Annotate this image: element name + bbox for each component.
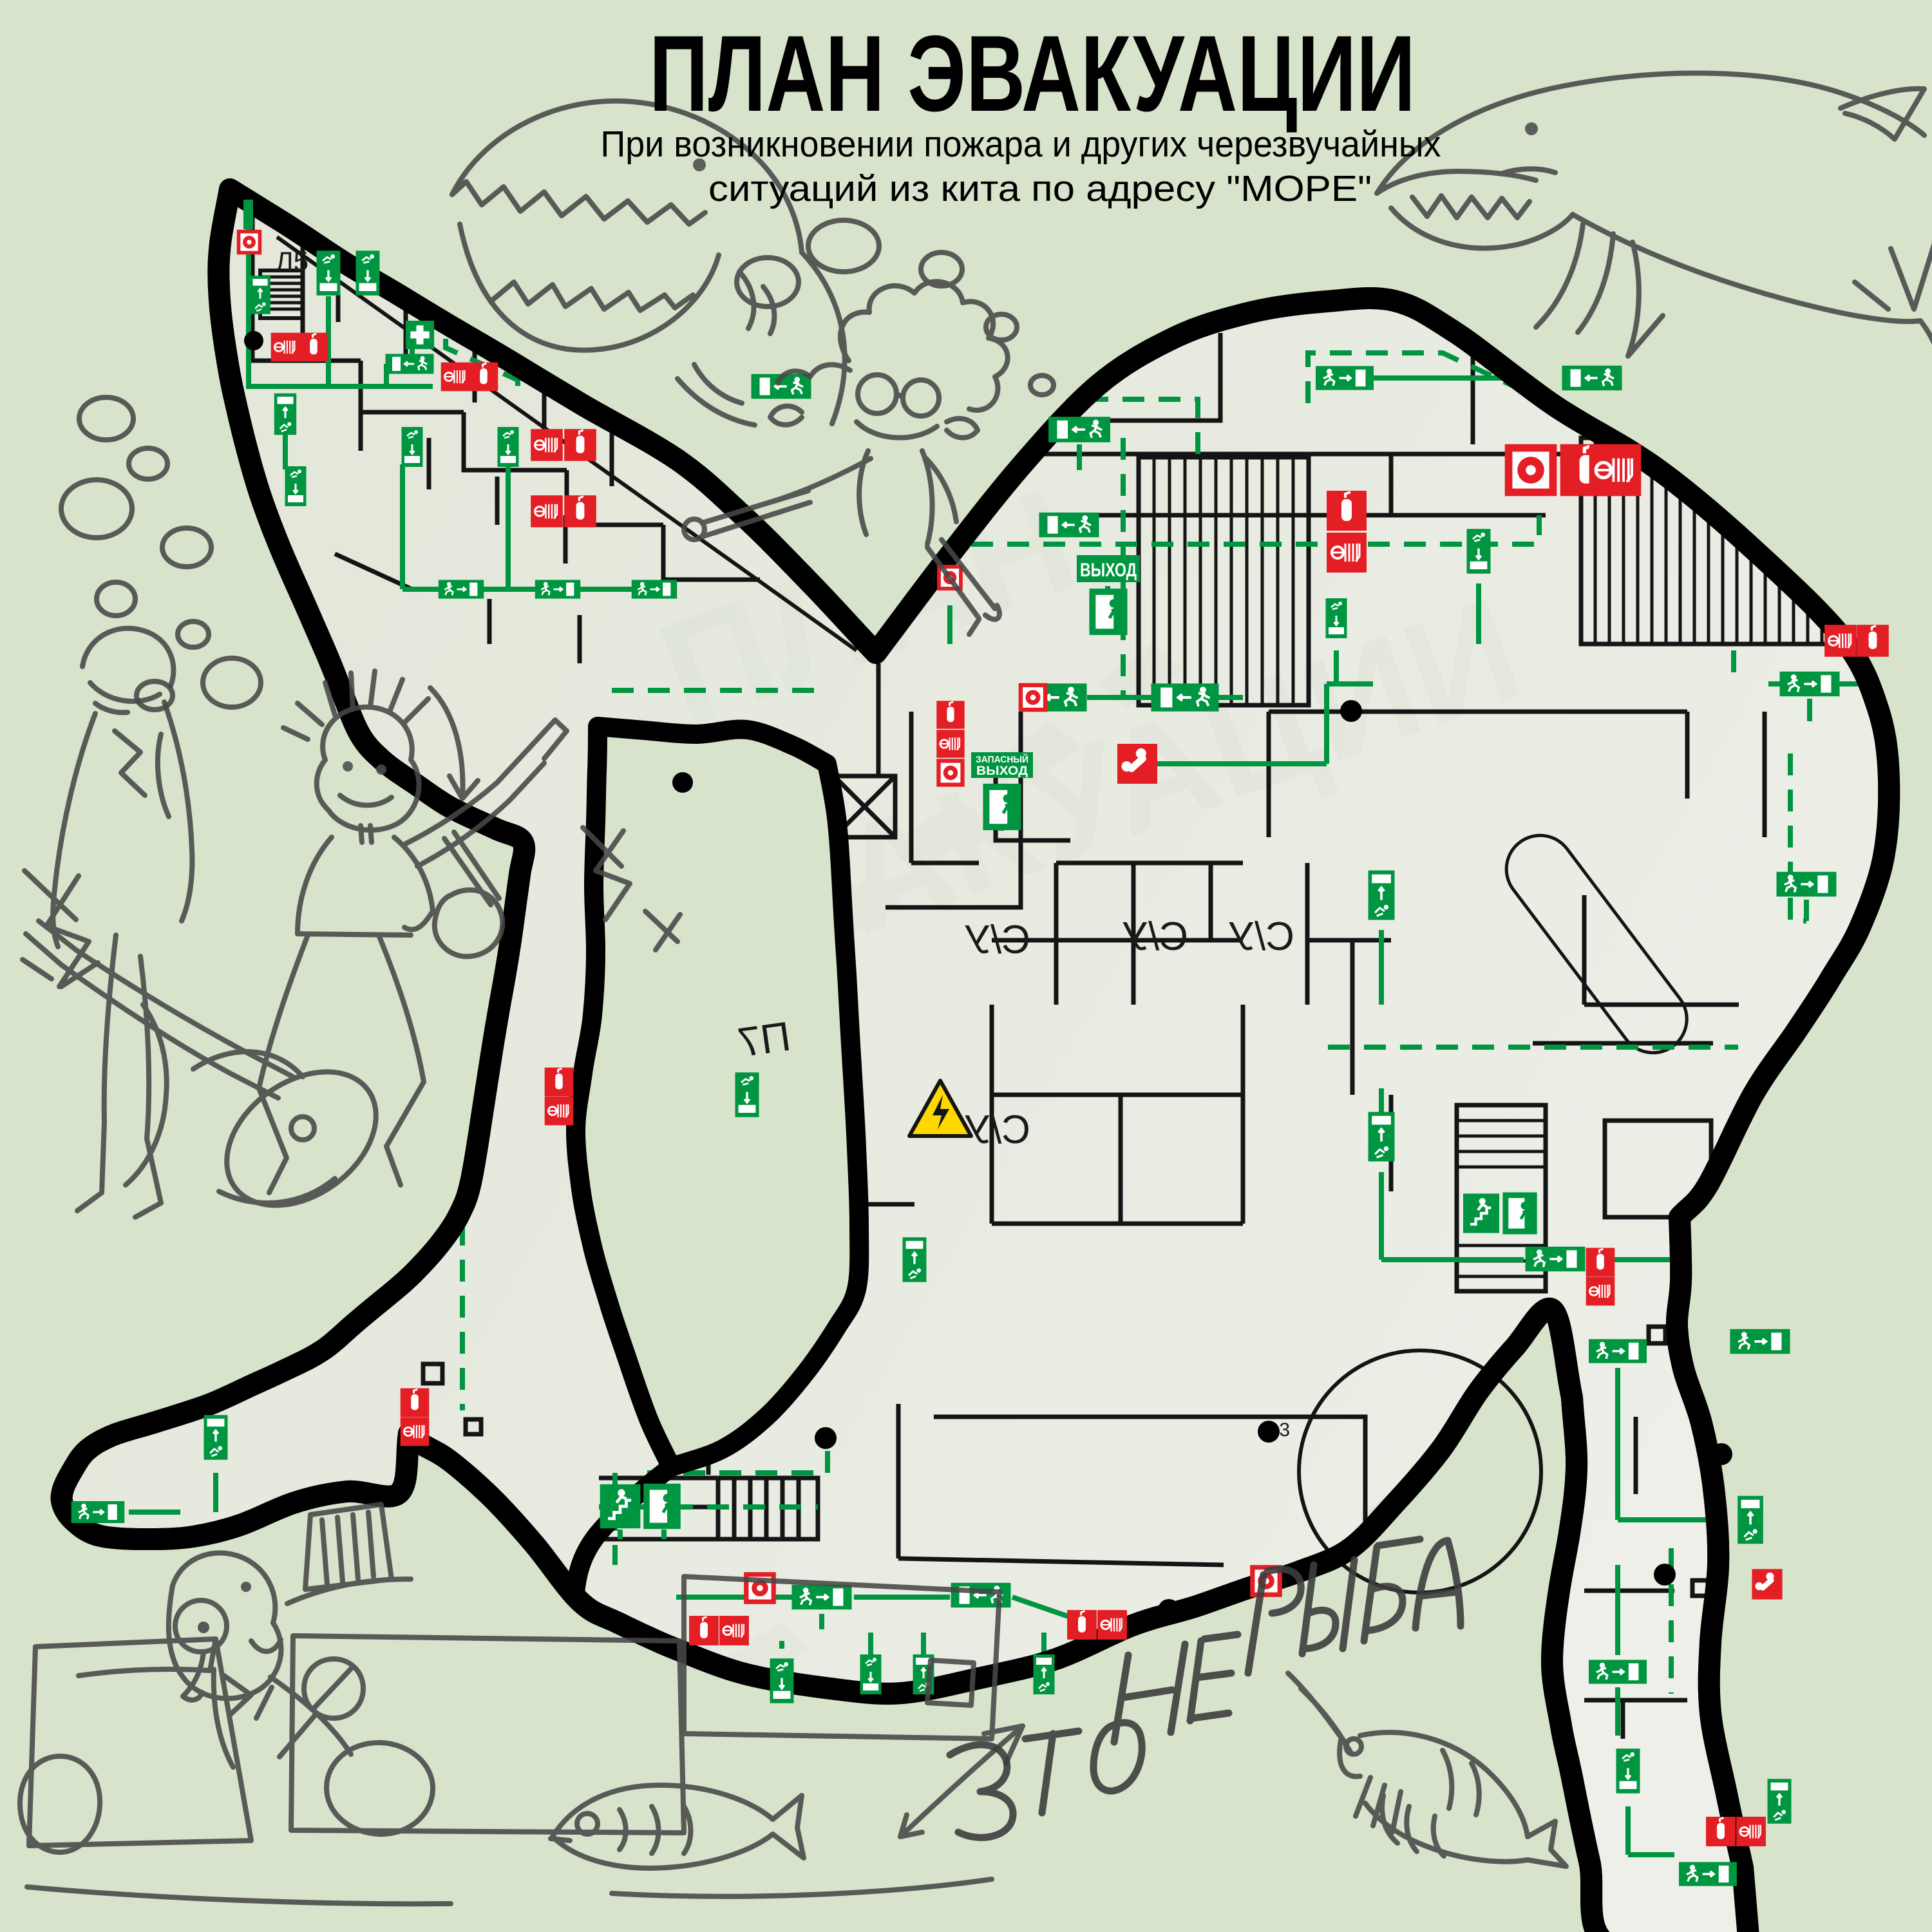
svg-text:С/У: С/У [965, 918, 1030, 962]
svg-text:ВЫХОД: ВЫХОД [1080, 560, 1137, 581]
svg-text:П7: П7 [735, 1013, 793, 1066]
svg-text:ситуаций из кита по адресу "МО: ситуаций из кита по адресу "МОРЕ" [708, 168, 1372, 209]
svg-text:С/У: С/У [1122, 914, 1188, 959]
svg-text:Л5: Л5 [276, 246, 308, 276]
svg-text:С/У: С/У [1229, 914, 1294, 959]
svg-text:ЗАПАСНЫЙ: ЗАПАСНЫЙ [976, 753, 1028, 765]
svg-text:ВЫХОД: ВЫХОД [976, 764, 1028, 778]
svg-text:ПЛАН ЭВАКУАЦИИ: ПЛАН ЭВАКУАЦИИ [649, 13, 1416, 134]
svg-text:При возникновении пожара и дру: При возникновении пожара и других черезв… [601, 124, 1441, 165]
svg-text:С/У: С/У [965, 1108, 1030, 1152]
